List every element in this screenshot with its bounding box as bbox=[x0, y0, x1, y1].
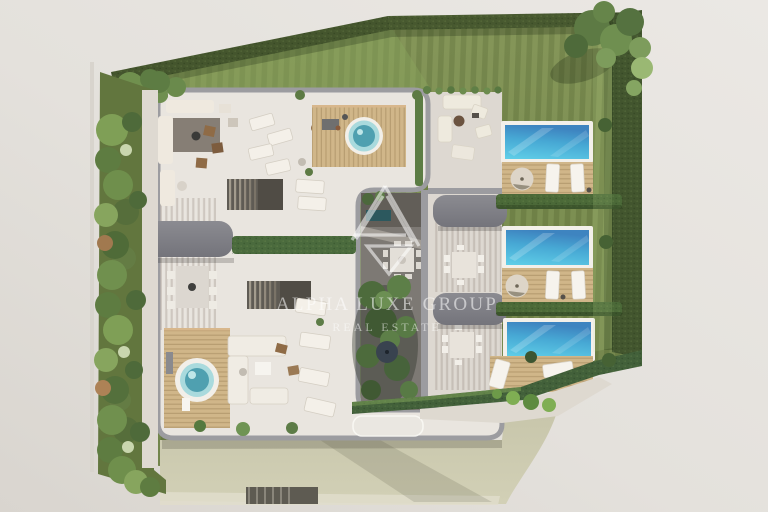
svg-text:REAL ESTATE: REAL ESTATE bbox=[332, 320, 441, 334]
svg-text:ALPHA LUXE GROUP: ALPHA LUXE GROUP bbox=[276, 294, 498, 315]
